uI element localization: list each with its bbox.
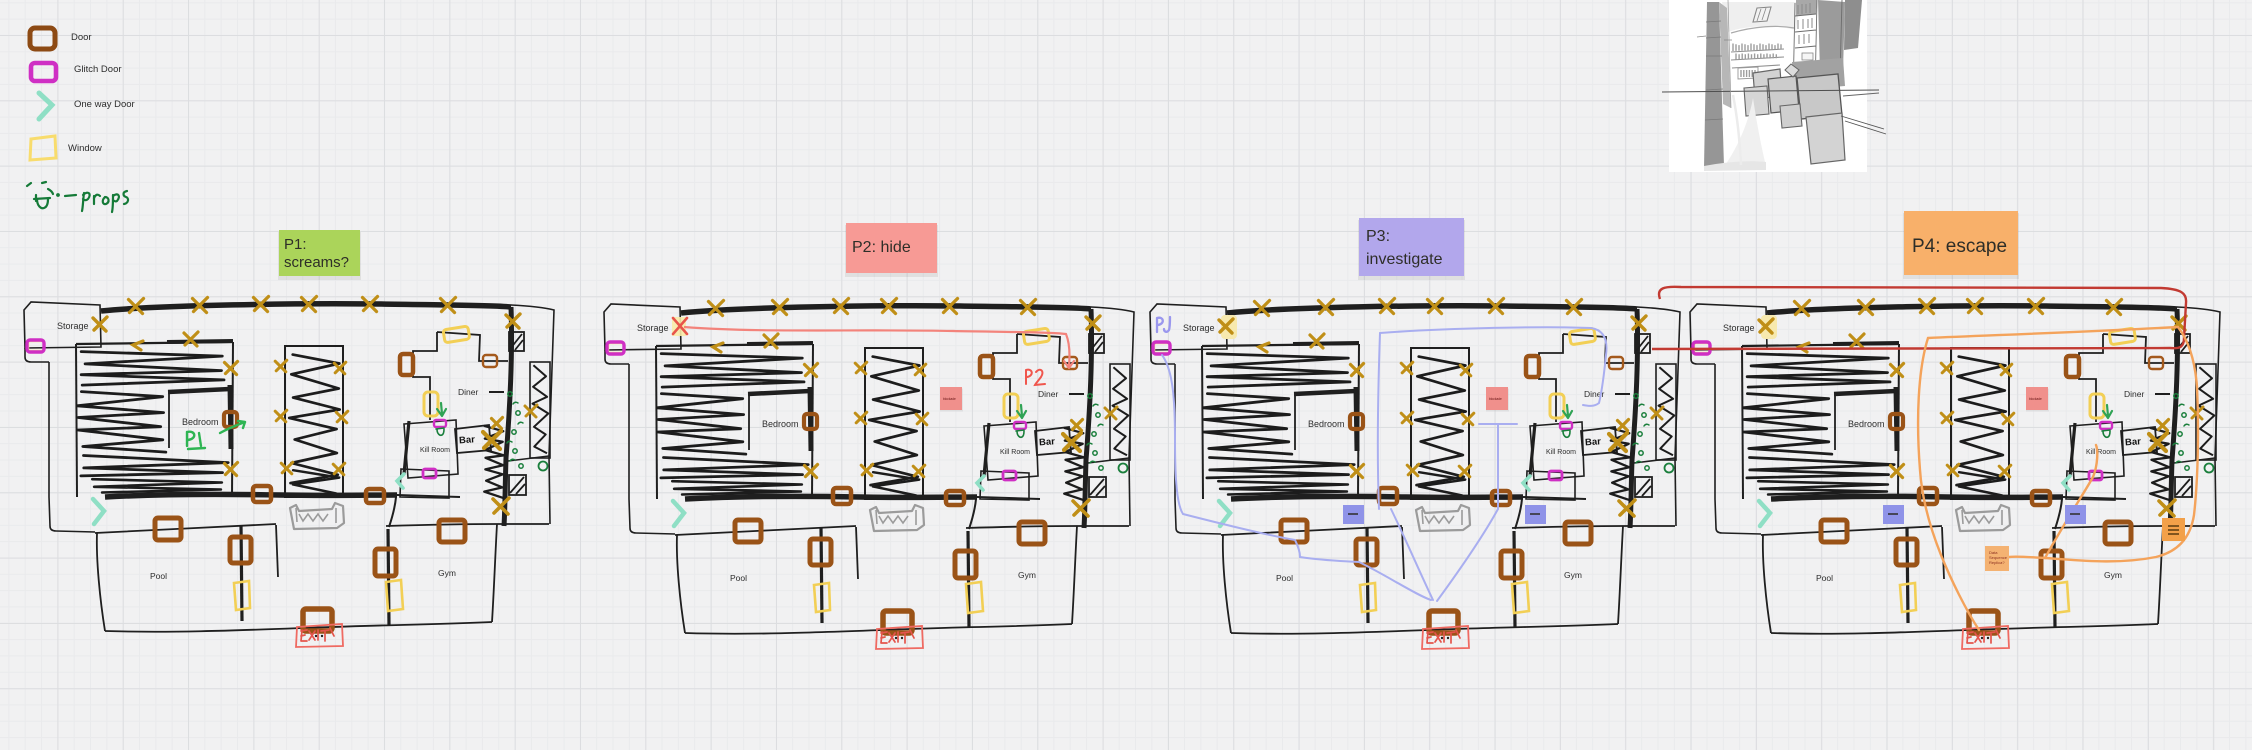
svg-text:blockade: blockade xyxy=(943,397,956,401)
svg-text:investigate: investigate xyxy=(1366,251,1443,268)
svg-text:P1:: P1: xyxy=(284,236,307,253)
svg-text:P2: hide: P2: hide xyxy=(852,239,911,256)
svg-text:blockade: blockade xyxy=(2029,397,2042,401)
svg-text:P3:: P3: xyxy=(1366,228,1390,245)
svg-text:Replica?: Replica? xyxy=(1989,560,2005,565)
svg-text:Glitch Door: Glitch Door xyxy=(74,64,122,75)
svg-text:Door: Door xyxy=(71,32,92,43)
svg-text:Window: Window xyxy=(68,143,102,154)
svg-text:One way Door: One way Door xyxy=(74,99,135,110)
svg-text:blockade: blockade xyxy=(1489,397,1502,401)
svg-text:screams?: screams? xyxy=(284,254,349,271)
svg-text:P4: escape: P4: escape xyxy=(1912,236,2007,257)
